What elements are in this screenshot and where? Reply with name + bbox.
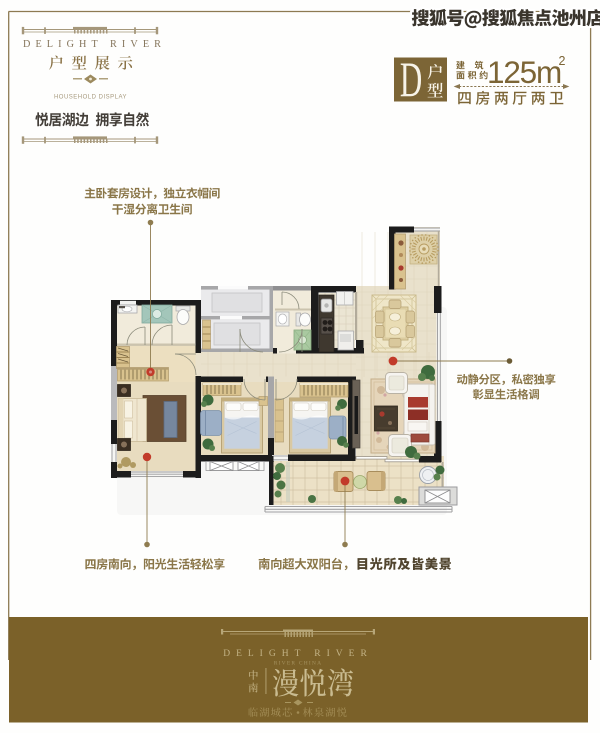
svg-text:D: D bbox=[400, 52, 422, 107]
svg-text:DELIGHT RIVER: DELIGHT RIVER bbox=[223, 649, 373, 659]
svg-text:HOUSEHOLD DISPLAY: HOUSEHOLD DISPLAY bbox=[54, 95, 127, 101]
svg-text:125m: 125m bbox=[487, 54, 561, 90]
svg-text:DELIGHT RIVER: DELIGHT RIVER bbox=[23, 39, 166, 50]
svg-text:RIVER CHINA: RIVER CHINA bbox=[274, 661, 323, 667]
svg-text:2: 2 bbox=[559, 54, 566, 68]
